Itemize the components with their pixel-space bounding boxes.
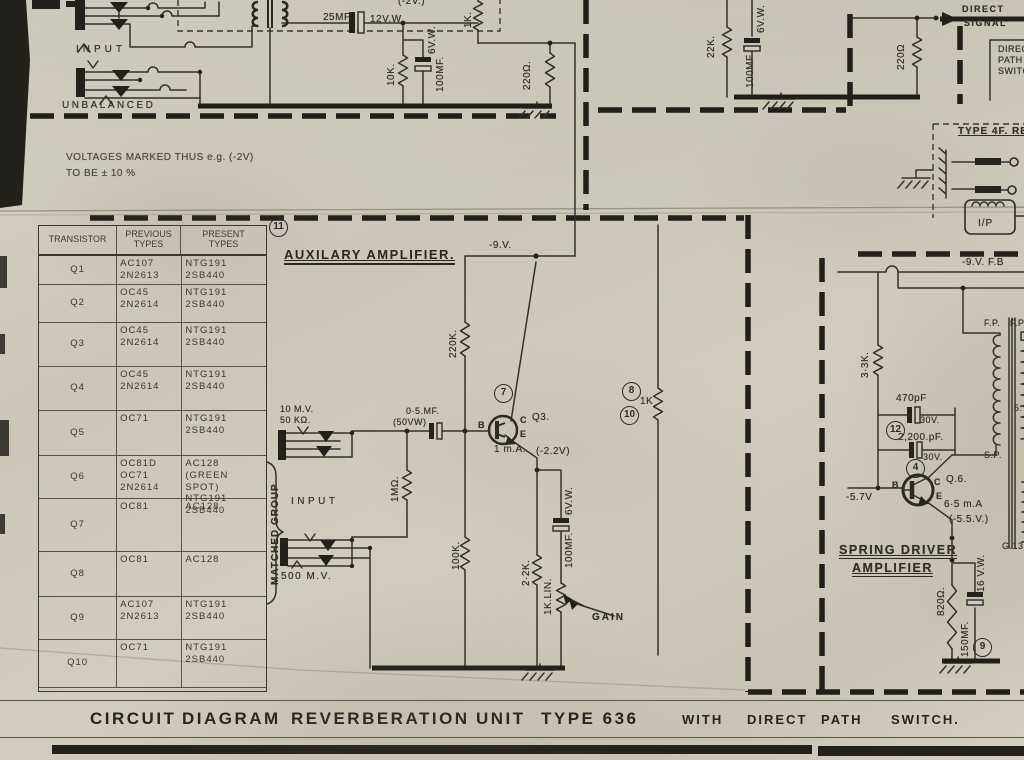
rail-neg9v-label: -9.V. bbox=[489, 240, 512, 252]
circled-7: 7 bbox=[494, 384, 513, 403]
resistor-1m-label: 1MΩ. bbox=[390, 476, 402, 502]
table-cell-present: NTG191 2SB440 bbox=[182, 256, 266, 284]
resistor-33k-label: 3·3K. bbox=[860, 352, 872, 378]
resistor-2k2-label: 2·2K. bbox=[521, 560, 533, 586]
cap-100mf-right-label: 100MF bbox=[745, 54, 757, 88]
cap-25mf-label: 25MF. bbox=[323, 12, 353, 24]
ip-label: I/P bbox=[978, 218, 993, 230]
cap-6vw-right-label: 6V.W. bbox=[756, 5, 768, 33]
table-cell-q: Q3 bbox=[39, 323, 117, 366]
title-word-circuit: CIRCUIT bbox=[90, 709, 176, 729]
table-cell-present: NTG191 2SB440 bbox=[182, 323, 266, 366]
input-transformer-icon bbox=[253, 2, 258, 26]
table-cell-q: Q5 bbox=[39, 411, 117, 455]
table-cell-q: Q9 bbox=[39, 597, 117, 639]
source-500mv-label: 500 M.V. bbox=[281, 571, 332, 583]
table-cell-previous: OC71 bbox=[117, 411, 182, 455]
resistor-820ohm-label: 820Ω. bbox=[936, 587, 948, 616]
table-cell-previous: AC107 2N2613 bbox=[117, 597, 182, 639]
direct-path-switch-label: DIRECT PATH SWITCH bbox=[998, 44, 1024, 76]
gain-label: GAIN bbox=[592, 612, 625, 624]
title-word-diagram: DIAGRAM bbox=[182, 709, 281, 729]
table-row: Q2OC45 2N2614NTG191 2SB440 bbox=[39, 285, 266, 323]
unbalanced-label: UNBALANCED bbox=[62, 100, 155, 112]
direct-signal-line1: DIRECT bbox=[962, 4, 1005, 15]
resistor-220k-label: 220K. bbox=[448, 329, 460, 358]
cap-100mf-mid-label: 100MF. bbox=[564, 532, 576, 568]
table-cell-q: Q6 bbox=[39, 456, 117, 498]
table-row: Q7OC81AC128 bbox=[39, 499, 266, 552]
q3-emitter-label: E bbox=[520, 429, 527, 440]
cap-470pf-voltage: 30V. bbox=[920, 415, 940, 426]
neg9v-fb-label: -9.V. F.B bbox=[962, 257, 1004, 269]
table-cell-present: NTG191 2SB440 bbox=[182, 640, 266, 687]
table-cell-previous: OC71 bbox=[117, 640, 182, 687]
resistor-1k-top-label: 1K. bbox=[463, 11, 475, 28]
table-cell-present: AC128 bbox=[182, 552, 266, 596]
pot-1klin-label: 1K.LIN. bbox=[543, 578, 555, 615]
transistor-q3-icon bbox=[489, 416, 517, 444]
table-row: Q8OC81AC128 bbox=[39, 552, 266, 597]
matched-group-label: MATCHED GROUP bbox=[270, 483, 282, 585]
q6-collector-label: C bbox=[934, 477, 941, 488]
g13-label: G.13 bbox=[1002, 541, 1024, 552]
q6-emitter-label: E bbox=[936, 491, 943, 502]
transistor-table: TRANSISTOR PREVIOUS TYPES PRESENT TYPES … bbox=[38, 225, 267, 692]
table-cell-previous: OC81D OC71 2N2614 bbox=[117, 456, 182, 498]
cap-6vw-mid-label: 6V.W. bbox=[564, 487, 576, 515]
cap-150mf-label: 150MF. bbox=[960, 621, 972, 657]
title-word-type636: TYPE 636 bbox=[541, 709, 639, 729]
table-header-present: PRESENT TYPES bbox=[181, 226, 266, 254]
q3-collector-label: C bbox=[520, 415, 527, 426]
resistor-22k-label: 22K. bbox=[706, 35, 718, 58]
table-row: Q6OC81D OC71 2N2614AC128 (GREEN SPOT) NT… bbox=[39, 456, 266, 499]
title-word-reverberation: REVERBERATION bbox=[291, 709, 470, 729]
voltage-neg2v-label: (-2V.) bbox=[398, 0, 425, 8]
title-word-switch: SWITCH. bbox=[891, 712, 960, 727]
q3-label: Q3. bbox=[532, 412, 550, 424]
voltage-neg22-label: (-2.2V) bbox=[536, 446, 570, 458]
resistor-10k-label: 10K. bbox=[386, 63, 398, 86]
capacitor-plates bbox=[358, 12, 983, 605]
voltage-note-line2: TO BE ± 10 % bbox=[66, 168, 136, 180]
cap-100mf-top-label: 100MF. bbox=[435, 56, 447, 92]
spring-driver-heading-1: SPRING DRIVER bbox=[839, 543, 957, 559]
q6-base-label: B bbox=[892, 480, 899, 491]
table-row: Q9AC107 2N2613NTG191 2SB440 bbox=[39, 597, 266, 640]
circled-8: 8 bbox=[622, 382, 641, 401]
table-cell-q: Q8 bbox=[39, 552, 117, 596]
voltage-neg55-label: (-5.5.V.) bbox=[949, 514, 989, 526]
circled-ref-11: 11 bbox=[269, 218, 288, 237]
cap-16vw-label: 16 V.W. bbox=[976, 554, 988, 592]
input-label-top: INPUT bbox=[76, 44, 126, 56]
q6-label: Q.6. bbox=[946, 474, 967, 486]
type4f-title: TYPE 4F. RE bbox=[958, 126, 1024, 138]
q3-current-label: 1 m.A. bbox=[494, 444, 526, 456]
table-cell-present: AC128 (GREEN SPOT) NTG191 2SB440 bbox=[182, 456, 266, 498]
direct-signal-line2: SIGNAL bbox=[964, 18, 1007, 29]
table-cell-present: NTG191 2SB440 bbox=[182, 411, 266, 455]
cap-05mf-label: 0·5.MF. bbox=[406, 406, 440, 417]
fp-label-1: F.P. bbox=[984, 318, 1000, 329]
cap-470pf-label: 470pF bbox=[896, 393, 927, 405]
input-label-mid: INPUT bbox=[291, 496, 339, 508]
resistor-100k-label: 100K. bbox=[451, 541, 463, 570]
cap-6vw-top-label: 6V.W. bbox=[427, 26, 439, 54]
transistor-table-body: Q1AC107 2N2613NTG191 2SB440Q2OC45 2N2614… bbox=[39, 256, 266, 688]
fp-label-2: F.P bbox=[1010, 318, 1024, 329]
table-cell-q: Q7 bbox=[39, 499, 117, 551]
table-cell-q: Q10 bbox=[39, 640, 117, 687]
title-word-with: WITH bbox=[682, 712, 723, 727]
circled-9: 9 bbox=[973, 638, 992, 657]
table-row: Q3OC45 2N2614NTG191 2SB440 bbox=[39, 323, 266, 367]
cap-12vw-label: 12V.W. bbox=[370, 14, 404, 26]
table-cell-present: NTG191 2SB440 bbox=[182, 285, 266, 322]
cap-2200pf-voltage: 30V. bbox=[923, 452, 943, 463]
circled-10: 10 bbox=[620, 406, 639, 425]
table-row: Q10OC71NTG191 2SB440 bbox=[39, 640, 266, 688]
q6-current-label: 6·5 m.A bbox=[944, 499, 983, 511]
resistor-220ohm-top-label: 220Ω. bbox=[522, 61, 534, 90]
cap-2200pf-label: 2,200.pF. bbox=[898, 432, 944, 444]
table-cell-previous: OC45 2N2614 bbox=[117, 323, 182, 366]
source-50k-label: 50 KΩ. bbox=[280, 415, 311, 426]
resistor-220ohm-right-label: 220Ω bbox=[896, 44, 908, 70]
table-cell-q: Q4 bbox=[39, 367, 117, 410]
title-word-unit: UNIT bbox=[476, 709, 526, 729]
cap-50vw-label: (50VW) bbox=[393, 417, 427, 428]
table-header-previous: PREVIOUS TYPES bbox=[117, 226, 181, 254]
voltage-note-line1: VOLTAGES MARKED THUS e.g. (-2V) bbox=[66, 152, 254, 164]
scan-edge-black bbox=[0, 0, 30, 208]
table-cell-present: AC128 bbox=[182, 499, 266, 551]
sp-label: S.P. bbox=[984, 450, 1002, 461]
title-word-direct: DIRECT bbox=[747, 712, 807, 727]
source-10mv-label: 10 M.V. bbox=[280, 404, 314, 415]
circled-4: 4 bbox=[906, 459, 925, 478]
table-cell-previous: OC81 bbox=[117, 499, 182, 551]
spring-driver-heading-2: AMPLIFIER bbox=[852, 561, 933, 577]
table-row: Q4OC45 2N2614NTG191 2SB440 bbox=[39, 367, 266, 411]
table-cell-q: Q2 bbox=[39, 285, 117, 322]
table-header-transistor: TRANSISTOR bbox=[39, 226, 117, 254]
table-cell-present: NTG191 2SB440 bbox=[182, 597, 266, 639]
table-cell-previous: OC81 bbox=[117, 552, 182, 596]
table-row: Q1AC107 2N2613NTG191 2SB440 bbox=[39, 256, 266, 285]
table-row: Q5OC71NTG191 2SB440 bbox=[39, 411, 266, 456]
q3-base-label: B bbox=[478, 420, 485, 431]
voltage-neg57-label: -5.7V bbox=[846, 492, 872, 504]
table-cell-previous: OC45 2N2614 bbox=[117, 285, 182, 322]
table-cell-previous: AC107 2N2613 bbox=[117, 256, 182, 284]
table-cell-previous: OC45 2N2614 bbox=[117, 367, 182, 410]
turns-ratio-label: 5: bbox=[1014, 403, 1023, 414]
aux-amplifier-heading: AUXILARY AMPLIFIER. bbox=[284, 247, 455, 265]
table-cell-present: NTG191 2SB440 bbox=[182, 367, 266, 410]
fold-crease bbox=[0, 207, 1024, 211]
resistor-1k-mid-label: 1K bbox=[640, 396, 653, 408]
schematic-scan: INPUT UNBALANCED VOLTAGES MARKED THUS e.… bbox=[0, 0, 1024, 760]
table-header-row: TRANSISTOR PREVIOUS TYPES PRESENT TYPES bbox=[39, 226, 266, 256]
table-cell-q: Q1 bbox=[39, 256, 117, 284]
title-word-path: PATH bbox=[821, 712, 862, 727]
